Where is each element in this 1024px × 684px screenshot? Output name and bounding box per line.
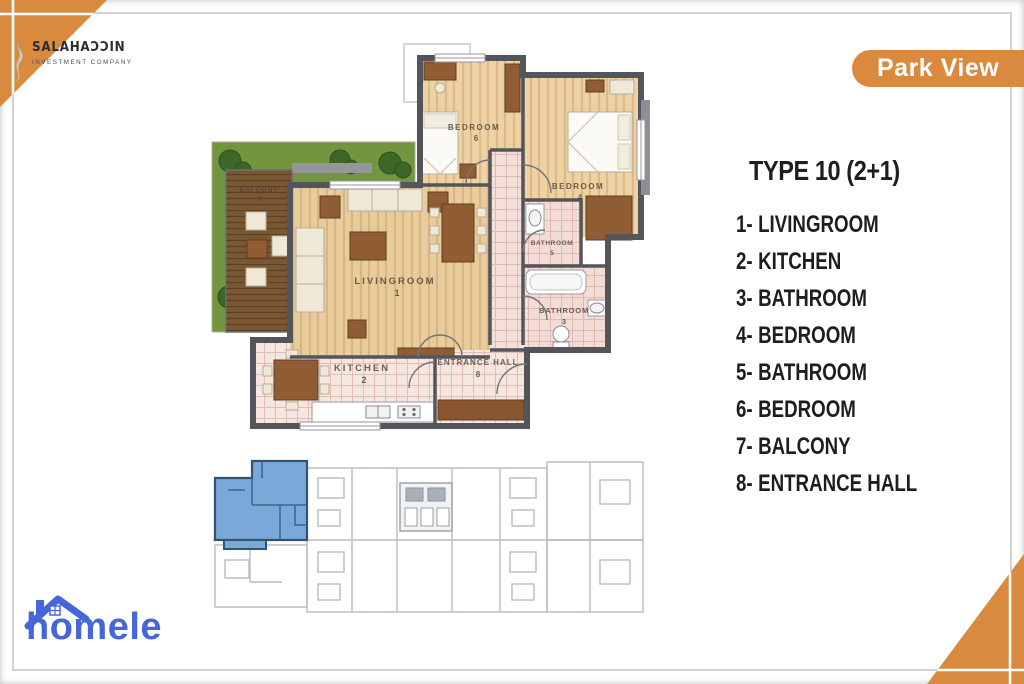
room-number: 2 — [361, 375, 366, 385]
company-logo: SALAHAƆƆIN INVESTMENT COMPANY — [10, 40, 138, 82]
room-number: 5 — [550, 250, 554, 257]
brochure-page: SALAHAƆƆIN INVESTMENT COMPANY Park View — [0, 0, 1024, 684]
room-balcony: BALCONY 7 — [226, 170, 294, 332]
legend-item: 7-BALCONY — [736, 433, 954, 470]
room-number: 1 — [394, 288, 399, 298]
company-subtitle: INVESTMENT COMPANY — [32, 59, 133, 66]
legend-item: 8-ENTRANCE HALL — [736, 470, 954, 507]
type-title: TYPE 10 (2+1) — [749, 155, 973, 187]
room-label: BALCONY — [239, 187, 278, 194]
legend-item: 3-BATHROOM — [736, 285, 954, 322]
legend-item: 6-BEDROOM — [736, 396, 954, 433]
highlighted-unit — [215, 461, 307, 549]
building-floor-overview — [195, 450, 665, 625]
corner-decoration-bottom-right — [894, 549, 1024, 684]
legend-item: 4-BEDROOM — [736, 322, 954, 359]
elevator-core — [400, 483, 452, 531]
room-label: BEDROOM — [448, 123, 500, 132]
room-label: BATHROOM — [531, 240, 574, 247]
portal-logo: homele — [26, 592, 186, 652]
room-number: 6 — [474, 134, 479, 143]
room-label: BEDROOM — [552, 182, 604, 191]
room-number: 7 — [257, 196, 261, 203]
room-label: BATHROOM — [539, 306, 589, 315]
portal-logo-text: homele — [26, 606, 162, 649]
company-logo-swoosh-icon — [10, 40, 26, 82]
room-number: 4 — [578, 193, 583, 202]
legend-item: 5-BATHROOM — [736, 359, 954, 396]
legend-list: 1-LIVINGROOM 2-KITCHEN 3-BATHROOM 4-BEDR… — [736, 211, 1016, 507]
company-name: SALAHAƆƆIN — [32, 40, 129, 55]
room-number: 3 — [562, 317, 566, 326]
legend-panel: TYPE 10 (2+1) 1-LIVINGROOM 2-KITCHEN 3-B… — [736, 155, 1016, 507]
room-label: KITCHEN — [334, 363, 390, 374]
room-number: 8 — [476, 370, 481, 379]
legend-item: 2-KITCHEN — [736, 248, 954, 285]
legend-item: 1-LIVINGROOM — [736, 211, 954, 248]
apartment-floor-plan: BALCONY 7 — [198, 36, 684, 448]
room-label: ENTRANCE HALL — [438, 358, 519, 367]
room-label: LIVINGROOM — [354, 276, 435, 287]
project-name-label: Park View — [852, 54, 999, 83]
garden-wall — [292, 163, 372, 173]
project-name-badge: Park View — [852, 50, 1024, 87]
